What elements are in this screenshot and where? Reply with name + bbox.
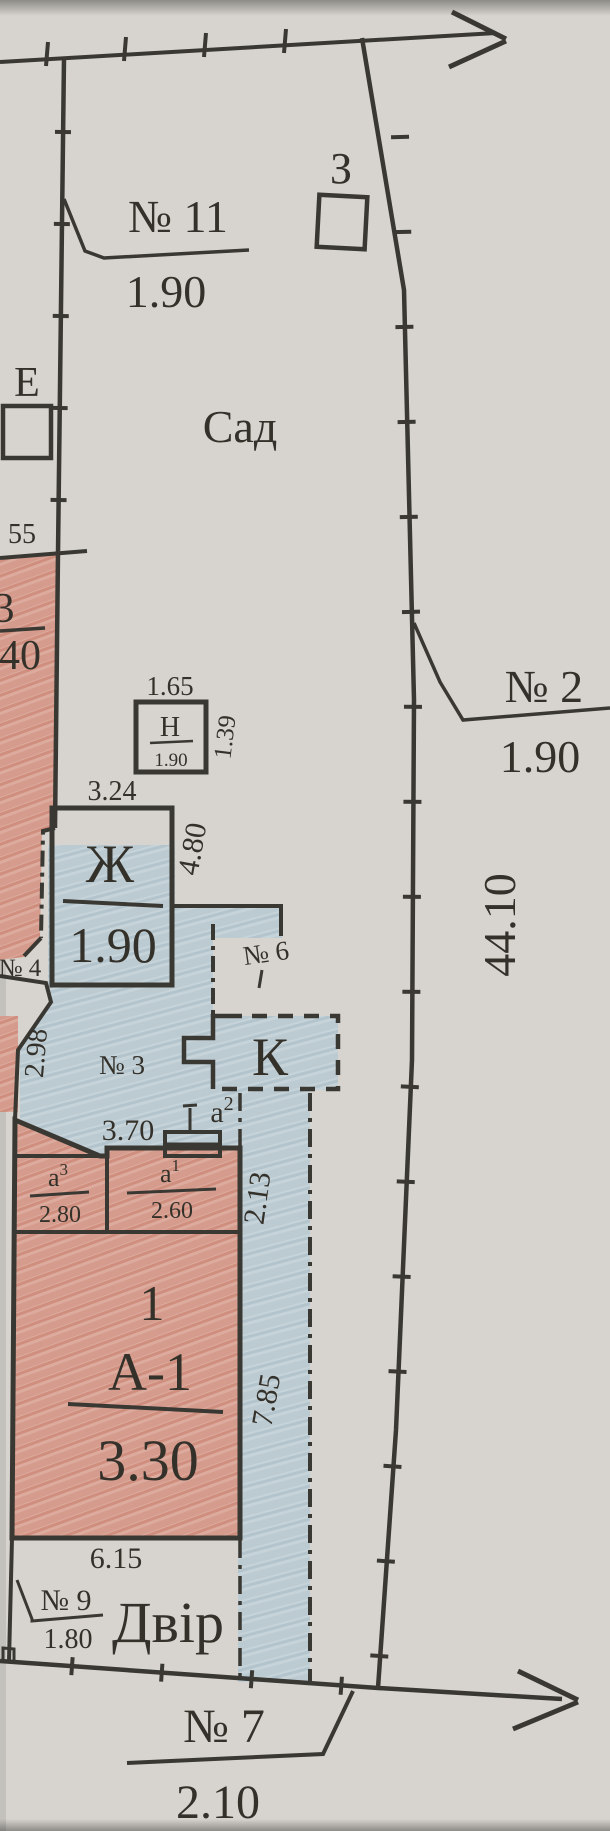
building-zh-value: 1.90: [69, 917, 157, 973]
marker-e-label: Е: [14, 360, 40, 406]
marker-z-label: З: [330, 144, 352, 193]
scan-shadow-top: [0, 0, 610, 16]
room-4-label: № 4: [0, 955, 42, 982]
building-n-code: Н: [160, 712, 180, 743]
building-a1-code: А-1: [108, 1342, 192, 1402]
parcel-2-label: № 2: [505, 661, 583, 712]
building-zh-code: Ж: [86, 834, 135, 894]
plan-drawing: 55 3 40 № 11 1.90 З Е Сад № 2 1.90 44.10…: [0, 0, 610, 1831]
cadastral-plan-sheet: 55 3 40 № 11 1.90 З Е Сад № 2 1.90 44.10…: [0, 0, 610, 1831]
room-6-label: № 6: [241, 935, 291, 971]
garden-label: Сад: [203, 401, 278, 452]
edge-fragment-frac-bottom: 40: [0, 633, 41, 679]
annex-a1-value: 2.60: [151, 1198, 193, 1224]
parcel-11-value: 1.90: [126, 266, 207, 317]
building-k-code: К: [252, 1027, 289, 1087]
building-a1-number: 1: [140, 1275, 165, 1331]
dim-left-side: 2.98: [19, 1027, 54, 1079]
edge-fragment-frac-top: 3: [0, 586, 15, 632]
building-a1-value: 3.30: [97, 1428, 199, 1493]
parcel-2-value: 1.90: [500, 731, 581, 782]
dim-zh-width: 3.24: [88, 776, 137, 807]
scan-shadow-bottom: [0, 1819, 610, 1831]
dim-yard-width: 6.15: [90, 1542, 143, 1575]
dim-porch-width: 3.70: [102, 1114, 155, 1147]
parcel-7-label: № 7: [183, 1700, 265, 1753]
dim-n-width: 1.65: [146, 671, 193, 701]
building-n-value: 1.90: [154, 750, 187, 771]
edge-fragment-tick-label: 55: [8, 519, 36, 550]
dim-n-side: 1.39: [209, 714, 241, 761]
yard-label: Двір: [112, 1590, 224, 1655]
parcel-9-value: 1.80: [44, 1624, 93, 1655]
parcel-11-label: № 11: [128, 191, 228, 242]
dim-right-boundary: 44.10: [474, 873, 525, 977]
parcel-9-label: № 9: [40, 1584, 91, 1617]
room-3-label: № 3: [99, 1050, 145, 1080]
annex-a3-value: 2.80: [39, 1202, 81, 1228]
parcel-7-value: 2.10: [176, 1776, 260, 1829]
